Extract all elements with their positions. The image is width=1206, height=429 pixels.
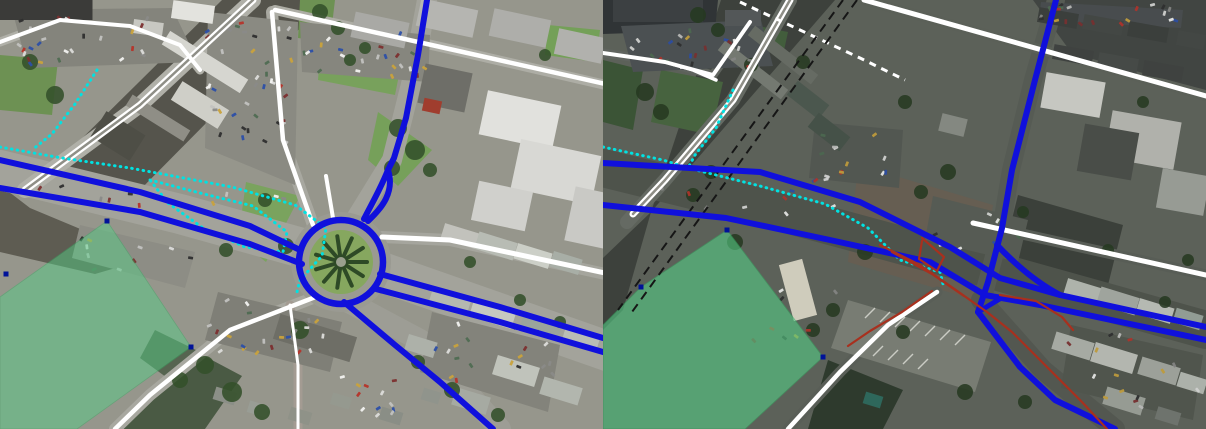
- aerial-map-left-canvas: [0, 0, 603, 429]
- map-panel-left[interactable]: [0, 0, 603, 429]
- aerial-imagery-comparison: [0, 0, 1206, 429]
- left-roundabout-base: [291, 212, 391, 312]
- aerial-map-right-canvas: [603, 0, 1206, 429]
- map-panel-right[interactable]: [603, 0, 1206, 429]
